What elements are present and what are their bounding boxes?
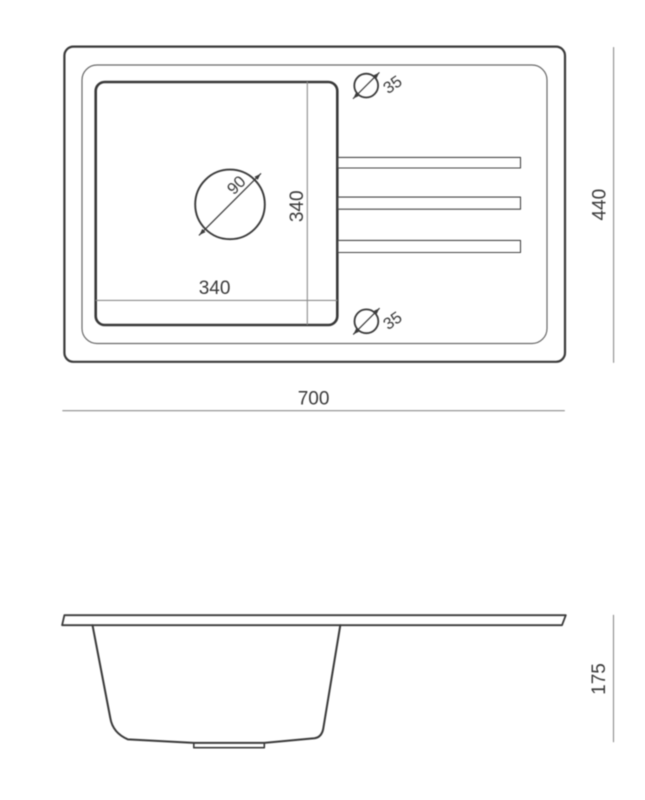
- svg-text:175: 175: [589, 663, 610, 695]
- svg-text:90: 90: [224, 173, 250, 199]
- svg-text:700: 700: [298, 389, 330, 410]
- svg-text:35: 35: [380, 72, 405, 97]
- svg-text:440: 440: [590, 189, 611, 221]
- svg-text:35: 35: [380, 308, 405, 333]
- svg-text:340: 340: [199, 278, 231, 299]
- svg-text:340: 340: [287, 190, 308, 222]
